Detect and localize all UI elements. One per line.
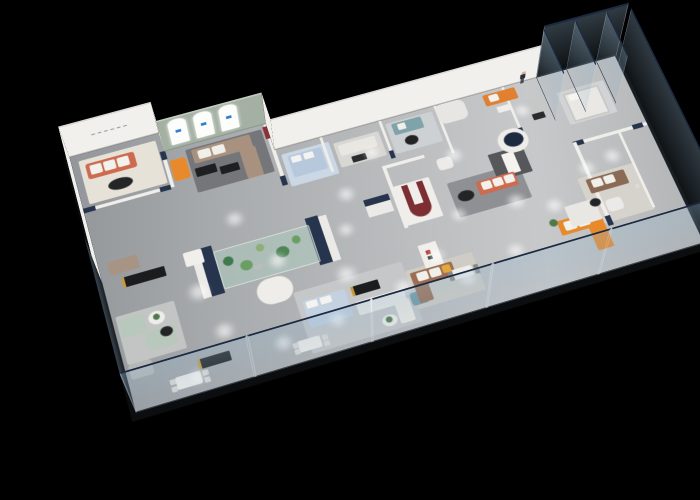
ceiling-light-pool <box>600 147 625 166</box>
showroom-3d-scene <box>81 56 700 412</box>
ceiling-light-pool <box>335 221 357 239</box>
wall-cap-navy-4 <box>160 151 168 161</box>
wall-signage-mark <box>117 126 121 128</box>
plant-tall <box>548 218 559 227</box>
wall-cap-navy-1 <box>83 205 96 213</box>
wall-signage-mark <box>91 133 95 135</box>
ceiling-light-pool <box>511 102 533 118</box>
coffee-table-dark-2 <box>532 111 546 120</box>
ceiling-light-pool <box>334 185 358 204</box>
wall-cap-navy-8 <box>632 122 644 129</box>
wall-signage-mark <box>110 128 114 130</box>
wall-cap-navy-3 <box>280 175 288 186</box>
brand-logo-icon <box>175 129 181 133</box>
brand-logo-icon <box>226 115 232 119</box>
sofa-brown-cushion-1 <box>416 270 430 281</box>
ceiling-light-pool <box>542 196 567 215</box>
render-canvas <box>0 0 700 500</box>
arched-window <box>192 110 215 139</box>
wall-signage-mark <box>98 132 102 134</box>
arched-window <box>166 117 190 146</box>
ceiling-light-pool <box>222 209 246 228</box>
wall-J-horizontal <box>384 155 425 169</box>
side-table-top <box>496 104 510 113</box>
wall-signage-mark <box>123 125 127 127</box>
sofa-taupe <box>107 254 140 275</box>
wall-signage-mark <box>104 130 108 132</box>
arched-window <box>218 103 240 132</box>
brand-logo-icon <box>201 122 207 126</box>
